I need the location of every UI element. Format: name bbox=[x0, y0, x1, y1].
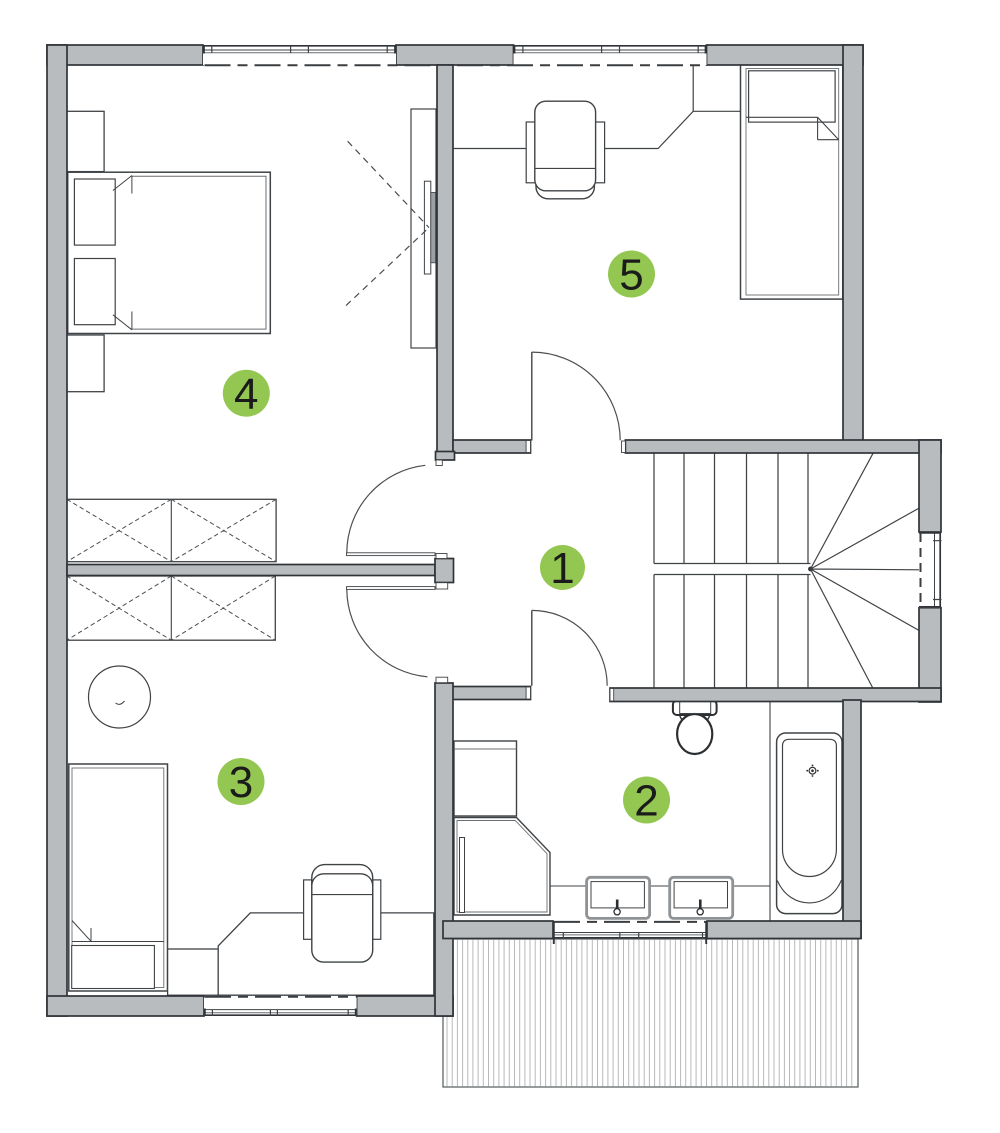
svg-text:5: 5 bbox=[619, 251, 643, 300]
svg-text:3: 3 bbox=[229, 758, 253, 807]
svg-text:2: 2 bbox=[634, 777, 658, 826]
svg-text:4: 4 bbox=[234, 370, 258, 419]
svg-text:1: 1 bbox=[550, 544, 574, 593]
